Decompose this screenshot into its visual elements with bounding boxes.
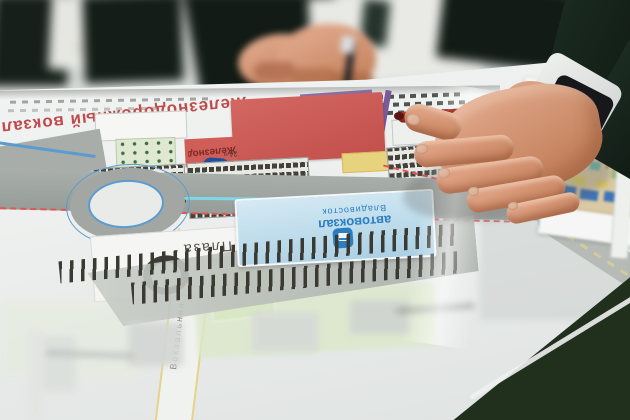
pointing-arm-group [0,0,630,420]
photo-scene: Железнодорожный вокзал Железнодорожный в… [0,0,630,420]
